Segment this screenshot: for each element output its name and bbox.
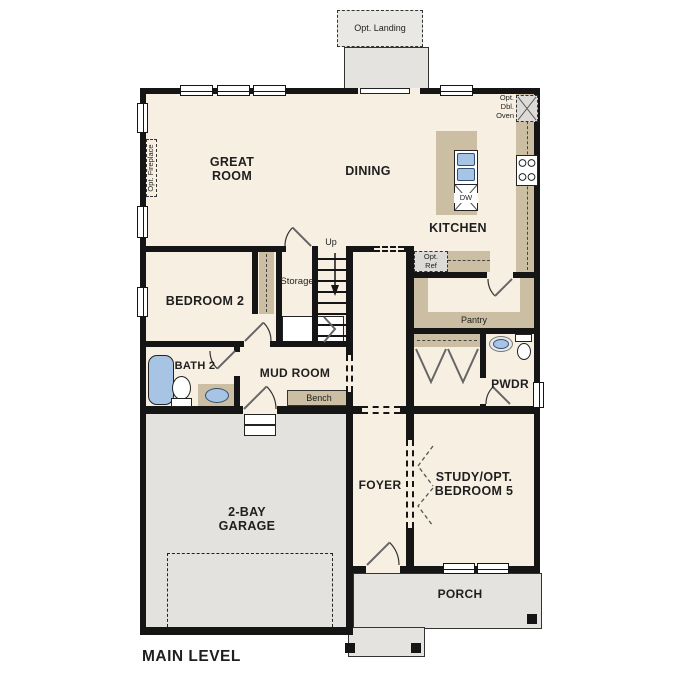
opening-front-door xyxy=(366,566,400,573)
window-greatroom-top-3 xyxy=(253,85,286,96)
bath2-toilet-tank xyxy=(171,398,192,407)
foyer-label: FOYER xyxy=(354,478,406,492)
opt-fireplace-label: Opt. Fireplace xyxy=(146,133,158,203)
window-pwdr-right xyxy=(533,382,544,408)
window-bedroom2-left xyxy=(137,287,148,317)
door-bedroom2 xyxy=(244,314,272,342)
bath2-sink xyxy=(205,388,229,403)
back-door-leaf xyxy=(360,88,410,94)
opt-dbl-oven-x-icon xyxy=(516,95,538,122)
window-study-bottom-2 xyxy=(477,563,509,574)
porch-post-1 xyxy=(345,643,355,653)
great-room-label: GREAT ROOM xyxy=(192,155,272,183)
cooktop-burners-icon xyxy=(516,155,538,186)
wall-hall-right xyxy=(406,246,414,334)
pantry-label: Pantry xyxy=(414,315,534,325)
wall-foyer-study-top xyxy=(406,414,414,440)
floor-plan: Opt. Landing xyxy=(0,0,687,687)
porch-post-2 xyxy=(411,643,421,653)
opt-landing-label: Opt. Landing xyxy=(337,23,423,33)
wall-pantry-top-left xyxy=(406,272,487,278)
opt-dbl-oven-label: Opt. Dbl. Oven xyxy=(478,93,514,120)
pwdr-toilet-bowl xyxy=(517,343,531,360)
cased-opening-mud-hall xyxy=(346,355,353,392)
porch-label: PORCH xyxy=(420,587,500,601)
door-greatroom-storage xyxy=(284,219,312,247)
bench-label: Bench xyxy=(287,393,351,403)
door-pantry xyxy=(487,278,513,304)
ref-counter-dash xyxy=(448,260,490,261)
door-mudroom-garage xyxy=(243,376,277,410)
wall-foyer-study-bottom xyxy=(406,528,414,566)
stair-tread-5 xyxy=(318,302,346,304)
window-kitchen-top xyxy=(440,85,473,96)
pwdr-label: PWDR xyxy=(486,377,534,391)
understair-door xyxy=(322,316,338,344)
window-greatroom-left-1 xyxy=(137,103,148,133)
stoop xyxy=(344,47,429,93)
window-greatroom-top-2 xyxy=(217,85,250,96)
coat-closet-shelf-dash xyxy=(417,340,477,341)
wall-garage-right xyxy=(346,406,353,635)
island-sink-basin-1 xyxy=(457,153,475,166)
opt-ref-label: Opt. Ref xyxy=(414,252,448,270)
pwdr-sink-basin xyxy=(493,339,509,349)
wall-stairs-left xyxy=(312,246,318,346)
wall-closetstrip-right xyxy=(276,252,282,341)
wall-garage-bottom xyxy=(140,627,353,635)
main-level-title: MAIN LEVEL xyxy=(142,650,262,664)
porch-floor xyxy=(353,573,542,629)
porch-post-3 xyxy=(527,614,537,624)
kitchen-label: KITCHEN xyxy=(418,221,498,235)
bath2-label: BATH 2 xyxy=(172,360,218,373)
bath2-toilet-bowl xyxy=(172,376,191,400)
garage-step-2 xyxy=(244,425,276,436)
mud-room-label: MUD ROOM xyxy=(250,366,340,380)
coat-closet-bifold-doors xyxy=(415,348,479,388)
wall-pantry-top-right xyxy=(513,272,540,278)
pwdr-toilet-tank xyxy=(515,334,532,342)
cased-opening-hall-foyer xyxy=(362,406,400,414)
bedroom2-closet-dash xyxy=(266,254,267,312)
window-greatroom-top-1 xyxy=(180,85,213,96)
garage-label: 2-BAY GARAGE xyxy=(202,505,292,533)
wall-closet-left xyxy=(406,334,414,412)
study-label: STUDY/OPT. BEDROOM 5 xyxy=(418,470,530,498)
dining-label: DINING xyxy=(330,164,406,178)
window-study-bottom-1 xyxy=(443,563,475,574)
cased-opening-dining-hall xyxy=(374,246,404,252)
garage-door-dashed xyxy=(167,553,333,627)
storage-label: Storage xyxy=(268,277,326,287)
island-sink-basin-2 xyxy=(457,168,475,181)
door-front xyxy=(366,532,400,566)
garage-step-1 xyxy=(244,414,276,425)
ref-counter xyxy=(448,251,490,272)
bedroom2-label: BEDROOM 2 xyxy=(152,294,258,308)
window-greatroom-left-2 xyxy=(137,206,148,238)
wall-bedroom2-top xyxy=(140,246,258,252)
stair-tread-6 xyxy=(318,313,346,315)
stairs-direction-arrow xyxy=(329,253,341,299)
dishwasher-label: DW xyxy=(454,193,478,203)
stairs-up-label: Up xyxy=(316,237,346,247)
